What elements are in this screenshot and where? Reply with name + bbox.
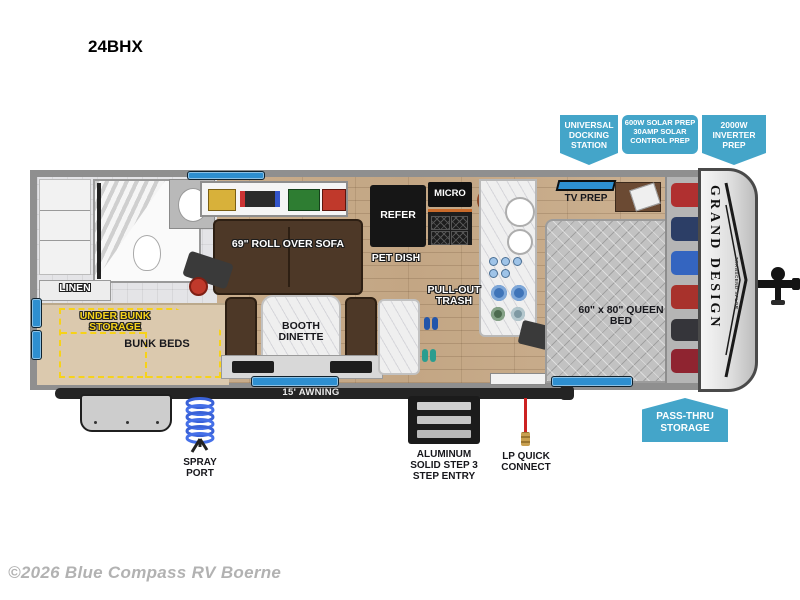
sandals bbox=[432, 317, 438, 330]
sandals bbox=[422, 349, 428, 362]
tv-prep-label: TV PREP bbox=[553, 194, 619, 205]
burner bbox=[451, 216, 468, 230]
rivet bbox=[126, 421, 129, 424]
rivet bbox=[156, 421, 159, 424]
glassware bbox=[489, 269, 498, 278]
lp-fitting bbox=[521, 432, 530, 446]
glassware bbox=[513, 257, 522, 266]
burner bbox=[451, 231, 468, 245]
sandals bbox=[424, 317, 430, 330]
shelf-line bbox=[40, 240, 90, 241]
sandals bbox=[430, 349, 436, 362]
entry-steps bbox=[408, 396, 480, 444]
entry-door bbox=[490, 373, 546, 385]
glassware bbox=[501, 257, 510, 266]
booth-dinette-label: BOOTH DINETTE bbox=[271, 321, 331, 344]
plate bbox=[511, 285, 527, 301]
window bbox=[31, 298, 42, 328]
cooktop bbox=[428, 209, 472, 245]
shelf-line bbox=[40, 210, 90, 211]
sofa-seam bbox=[288, 227, 290, 287]
bunk-beds-label: BUNK BEDS bbox=[107, 339, 207, 351]
spray-port-label: SPRAY PORT bbox=[172, 458, 228, 480]
shower-rod bbox=[97, 183, 101, 279]
cabinet-door-open bbox=[629, 183, 661, 212]
burner bbox=[431, 231, 450, 245]
pet-dish-label: PET DISH bbox=[363, 253, 429, 264]
pull-out-trash-label: PULL-OUT TRASH bbox=[423, 285, 485, 308]
board-game bbox=[322, 189, 346, 211]
tv-icon bbox=[556, 180, 617, 191]
steps-label: ALUMINUM SOLID STEP 3 STEP ENTRY bbox=[406, 450, 482, 482]
board-game bbox=[208, 189, 236, 211]
overhead-cabinet bbox=[615, 182, 661, 212]
burner bbox=[431, 216, 450, 230]
step-tread bbox=[417, 416, 471, 424]
window bbox=[187, 171, 265, 180]
storage-drawer bbox=[330, 361, 372, 373]
lp-line bbox=[524, 398, 527, 434]
kitchen-sink bbox=[507, 229, 533, 255]
awning-end-cap bbox=[560, 386, 574, 400]
kitchen-counter bbox=[479, 179, 537, 337]
queen-bed-label: 60" x 80" QUEEN BED bbox=[573, 305, 669, 328]
kitchen-sink bbox=[505, 197, 535, 227]
microwave: MICRO bbox=[428, 182, 472, 207]
storage-hatch bbox=[80, 394, 172, 432]
spray-port-hose bbox=[182, 397, 218, 455]
bowl bbox=[491, 307, 505, 321]
brand-logo: GRAND DESIGN bbox=[706, 185, 722, 377]
micro-label: MICRO bbox=[434, 189, 466, 199]
overhead-shelf bbox=[200, 181, 348, 217]
under-bunk-storage-label: UNDER BUNK STORAGE bbox=[63, 311, 167, 334]
closet-shelves bbox=[39, 179, 91, 275]
front-cap: GRAND DESIGN TRANSCEND XPLOR bbox=[698, 168, 758, 392]
lp-quick-connect-label: LP QUICK CONNECT bbox=[492, 452, 560, 474]
storage-drawer bbox=[232, 361, 274, 373]
plate bbox=[491, 285, 507, 301]
callout-pass-thru-storage: PASS-THRU STORAGE bbox=[642, 398, 728, 442]
glassware bbox=[489, 257, 498, 266]
pantry-cabinet bbox=[378, 299, 420, 375]
sofa bbox=[213, 219, 363, 295]
series-logo: TRANSCEND XPLOR bbox=[734, 257, 739, 317]
floorplan-page: 24BHX UNIVERSAL DOCKING STATION 600W SOL… bbox=[0, 0, 800, 600]
step-tread bbox=[417, 402, 471, 410]
step-tread bbox=[417, 430, 471, 438]
glassware bbox=[501, 269, 510, 278]
window bbox=[251, 376, 339, 387]
rivet bbox=[94, 421, 97, 424]
model-title: 24BHX bbox=[88, 37, 143, 57]
window bbox=[31, 330, 42, 360]
pet-toy bbox=[189, 277, 208, 296]
callout-universal-docking-station: UNIVERSAL DOCKING STATION bbox=[560, 115, 618, 165]
copyright-text: ©2026 Blue Compass RV Boerne bbox=[8, 563, 281, 583]
trailer-body: LINEN UNDER BUNK STORAGE BUNK BEDS 69" R… bbox=[30, 170, 720, 390]
awning-label: 15' AWNING bbox=[282, 388, 339, 398]
board-game bbox=[288, 189, 320, 211]
game-console bbox=[240, 191, 280, 207]
toilet bbox=[133, 235, 161, 271]
sofa-label: 69" ROLL OVER SOFA bbox=[205, 239, 371, 250]
linen-label: LINEN bbox=[43, 283, 107, 294]
callout-solar-prep: 600W SOLAR PREP 30AMP SOLAR CONTROL PREP bbox=[622, 115, 698, 154]
refer-label: REFER bbox=[380, 210, 416, 221]
bowl bbox=[511, 307, 525, 321]
refrigerator: REFER bbox=[370, 185, 426, 247]
callout-inverter-prep: 2000W INVERTER PREP bbox=[702, 115, 766, 165]
